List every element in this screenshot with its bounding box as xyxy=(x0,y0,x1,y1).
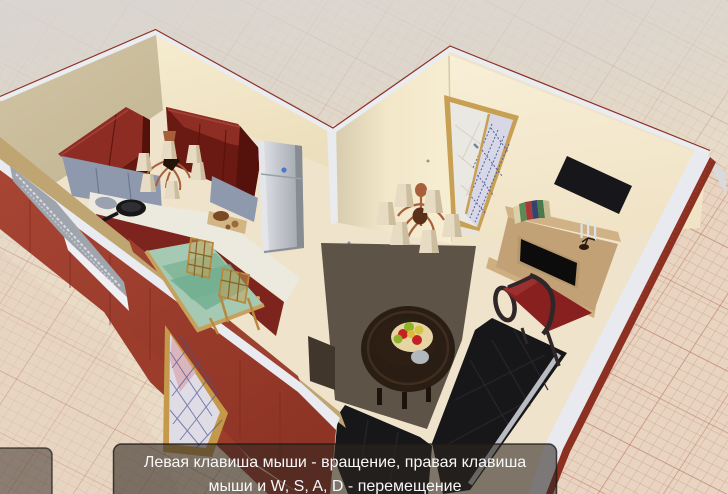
svg-text:мыши и W, S, A, D - перемещени: мыши и W, S, A, D - перемещение xyxy=(208,478,461,494)
svg-text:Левая клавиша мыши - вращение,: Левая клавиша мыши - вращение, правая кл… xyxy=(144,454,526,471)
